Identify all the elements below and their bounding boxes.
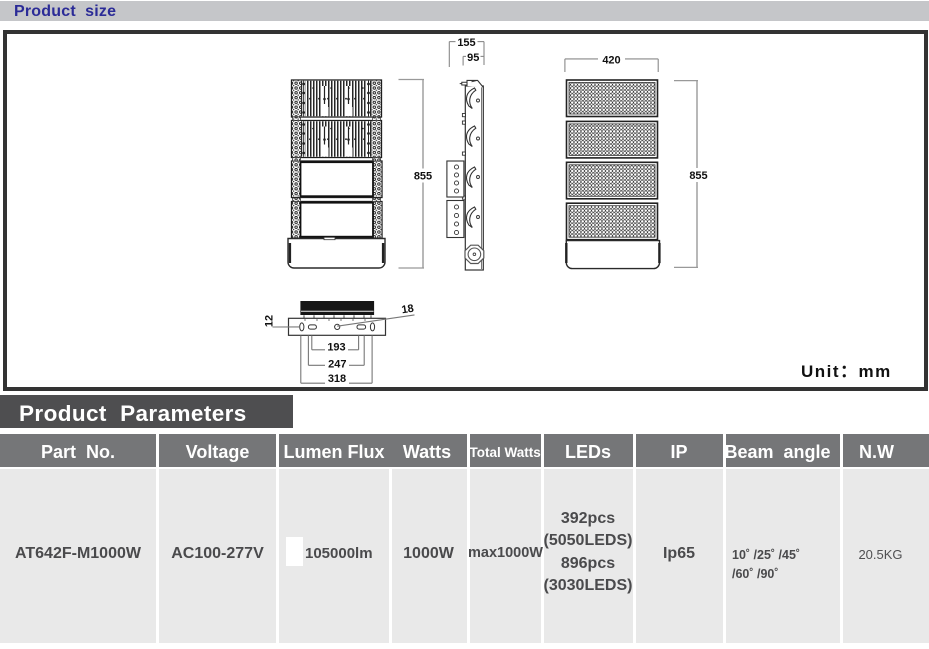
svg-text:155: 155 — [457, 37, 475, 49]
svg-text:420: 420 — [602, 54, 620, 66]
svg-text:247: 247 — [328, 358, 346, 370]
svg-text:95: 95 — [467, 52, 479, 64]
svg-text:855: 855 — [689, 170, 707, 182]
svg-text:193: 193 — [327, 342, 345, 354]
svg-text:318: 318 — [328, 373, 346, 385]
svg-text:18: 18 — [401, 303, 415, 317]
svg-text:12: 12 — [264, 315, 276, 327]
svg-text:855: 855 — [414, 171, 432, 183]
